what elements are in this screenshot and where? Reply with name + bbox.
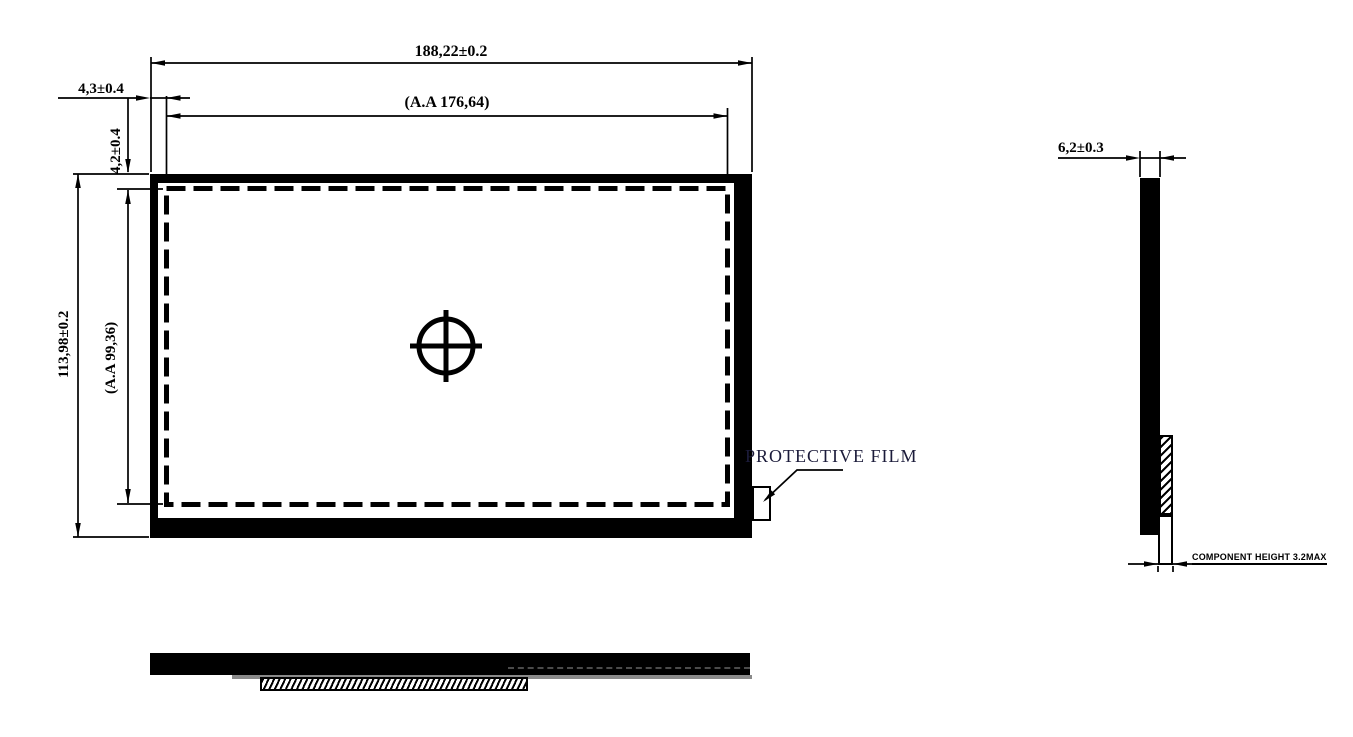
side-view-component-hatch	[1159, 435, 1173, 515]
dim-label-panel-width: 188,22±0.2	[150, 43, 752, 61]
dim-label-side-thickness: 6,2±0.3	[1058, 140, 1104, 157]
panel-bottom-view-body	[150, 653, 750, 675]
panel-front-view-bezel	[150, 174, 752, 538]
side-view-component-outline	[1158, 515, 1173, 565]
dim-panel-width	[151, 57, 752, 172]
dim-label-active-width: (A.A 176,64)	[164, 94, 730, 112]
protective-film-tab	[752, 486, 771, 521]
bottom-view-component-hatch	[260, 677, 528, 691]
dim-label-top-border: 4,2±0.4	[108, 128, 125, 174]
dim-label-panel-height: 113,98±0.2	[56, 311, 73, 378]
protective-film-leader	[763, 470, 843, 502]
bottom-view-hidden-line	[508, 667, 750, 669]
dim-label-active-height: (A.A 99,36)	[103, 322, 120, 394]
dim-label-left-border: 4,3±0.4	[57, 81, 145, 98]
protective-film-label: PROTECTIVE FILM	[745, 446, 918, 467]
component-height-note: COMPONENT HEIGHT 3.2MAX	[1192, 552, 1327, 565]
panel-side-view-body	[1140, 178, 1160, 535]
mechanical-drawing-canvas: 188,22±0.2 (A.A 176,64) 4,3±0.4 4,2±0.4 …	[0, 0, 1353, 737]
